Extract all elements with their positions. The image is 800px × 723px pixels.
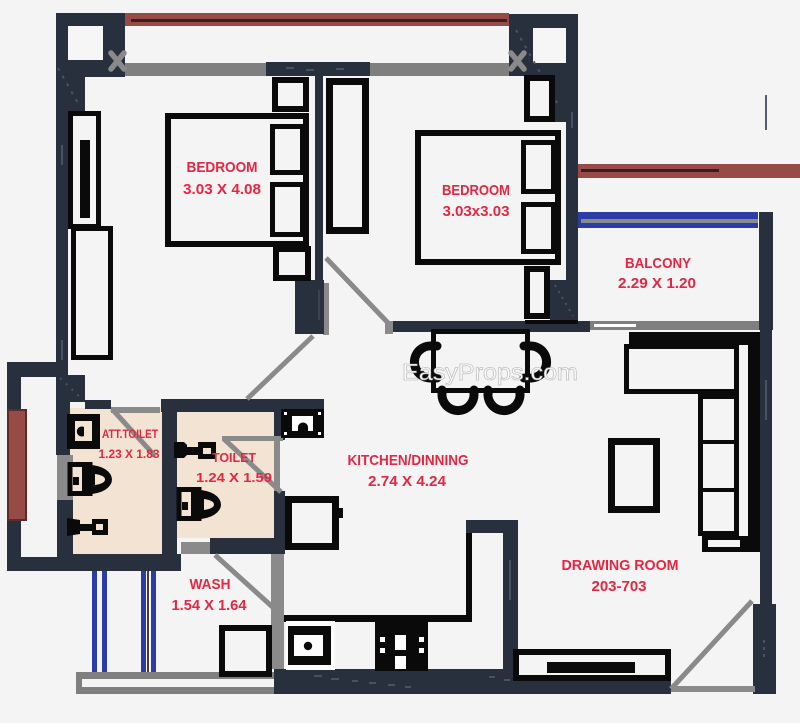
- svg-text:1.24 X 1.59: 1.24 X 1.59: [196, 471, 272, 485]
- svg-text:DRAWING ROOM: DRAWING ROOM: [562, 557, 679, 574]
- svg-text:2.74 X 4.24: 2.74 X 4.24: [368, 473, 447, 490]
- svg-text:WASH: WASH: [190, 576, 231, 593]
- svg-text:1.23 X 1.83: 1.23 X 1.83: [99, 449, 160, 461]
- svg-text:ATT.TOILET: ATT.TOILET: [102, 429, 158, 441]
- svg-text:KITCHEN/DINNING: KITCHEN/DINNING: [348, 452, 469, 469]
- svg-text:BEDROOM: BEDROOM: [442, 182, 510, 199]
- svg-text:3.03x3.03: 3.03x3.03: [443, 203, 510, 220]
- svg-text:3.03 X 4.08: 3.03 X 4.08: [183, 181, 261, 198]
- svg-text:203-703: 203-703: [592, 578, 647, 595]
- svg-text:TOILET: TOILET: [212, 451, 256, 465]
- svg-text:EasyProps.com: EasyProps.com: [402, 359, 578, 385]
- svg-text:BALCONY: BALCONY: [625, 255, 691, 272]
- svg-text:BEDROOM: BEDROOM: [187, 159, 258, 176]
- svg-text:1.54 X 1.64: 1.54 X 1.64: [172, 597, 248, 614]
- svg-text:2.29 X 1.20: 2.29 X 1.20: [618, 275, 696, 292]
